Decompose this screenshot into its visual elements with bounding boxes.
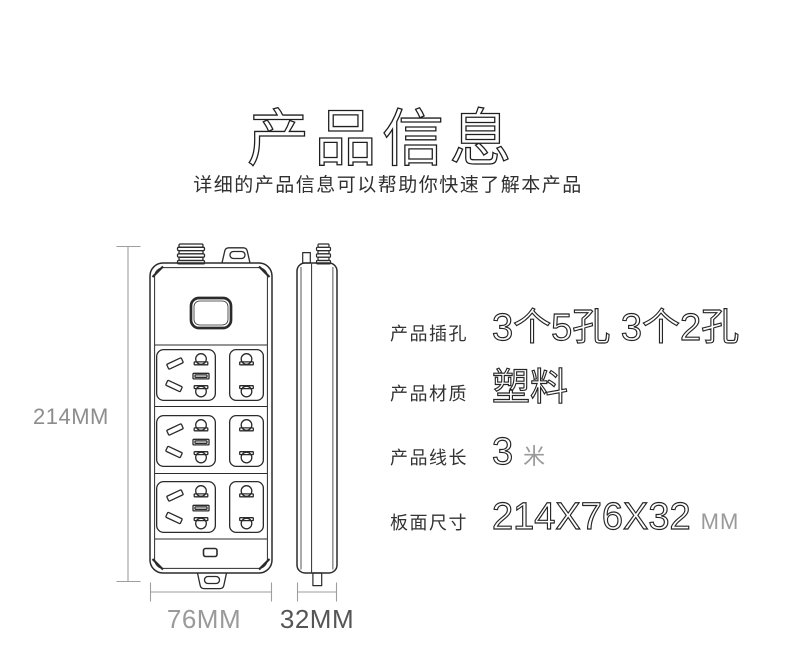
spec-value: 214X76X32 [492,496,691,538]
spec-suffix: 米 [523,444,546,469]
spec-suffix: MM [701,509,740,534]
product-info-page: 产品信息 详细的产品信息可以帮助你快速了解本产品 [0,0,790,656]
spec-row-panel-size: 板面尺寸214X76X32MM [390,495,739,540]
spec-label: 板面尺寸 [390,513,492,534]
spec-row-cable-length: 产品线长3米 [390,430,546,475]
spec-list: 产品插孔3个5孔 3个2孔 产品材质塑料 产品线长3米 板面尺寸214X76X3… [0,0,790,656]
spec-value: 3个5孔 3个2孔 [492,307,739,349]
spec-label: 产品线长 [390,448,492,469]
spec-label: 产品材质 [390,384,492,405]
spec-value: 3 [492,431,513,473]
spec-row-material: 产品材质塑料 [390,366,578,411]
spec-value: 塑料 [492,367,568,409]
spec-label: 产品插孔 [390,324,492,345]
spec-row-sockets: 产品插孔3个5孔 3个2孔 [390,306,749,351]
